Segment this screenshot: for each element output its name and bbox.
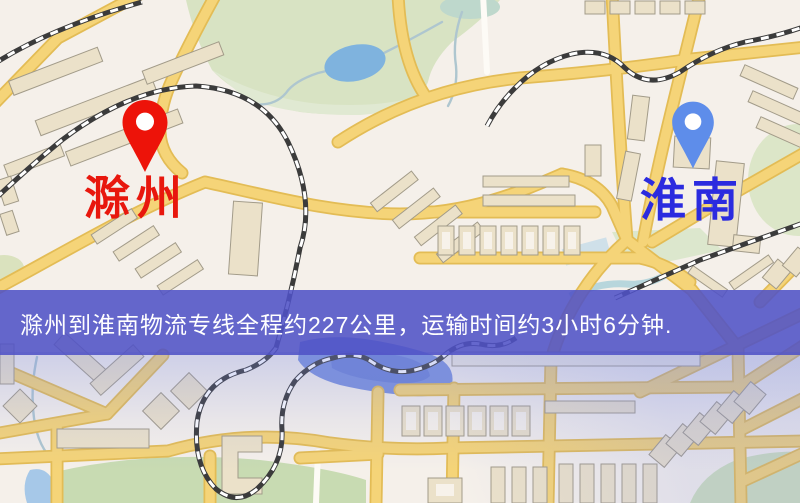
destination-pin[interactable] bbox=[668, 100, 718, 170]
origin-pin[interactable] bbox=[118, 97, 172, 175]
pin-shape bbox=[123, 100, 168, 172]
destination-city-label: 淮南 bbox=[640, 178, 744, 224]
pin-shape bbox=[672, 102, 714, 169]
route-info-banner: 滁州到淮南物流专线全程约227公里，运输时间约3小时6分钟. bbox=[0, 290, 800, 355]
map-artwork bbox=[0, 0, 800, 503]
origin-city-label: 滁州 bbox=[84, 176, 188, 222]
route-info-text: 滁州到淮南物流专线全程约227公里，运输时间约3小时6分钟. bbox=[20, 306, 672, 340]
map-canvas[interactable]: 滁州 淮南 滁州到淮南物流专线全程约227公里，运输时间约3小时6分钟. bbox=[0, 0, 800, 503]
